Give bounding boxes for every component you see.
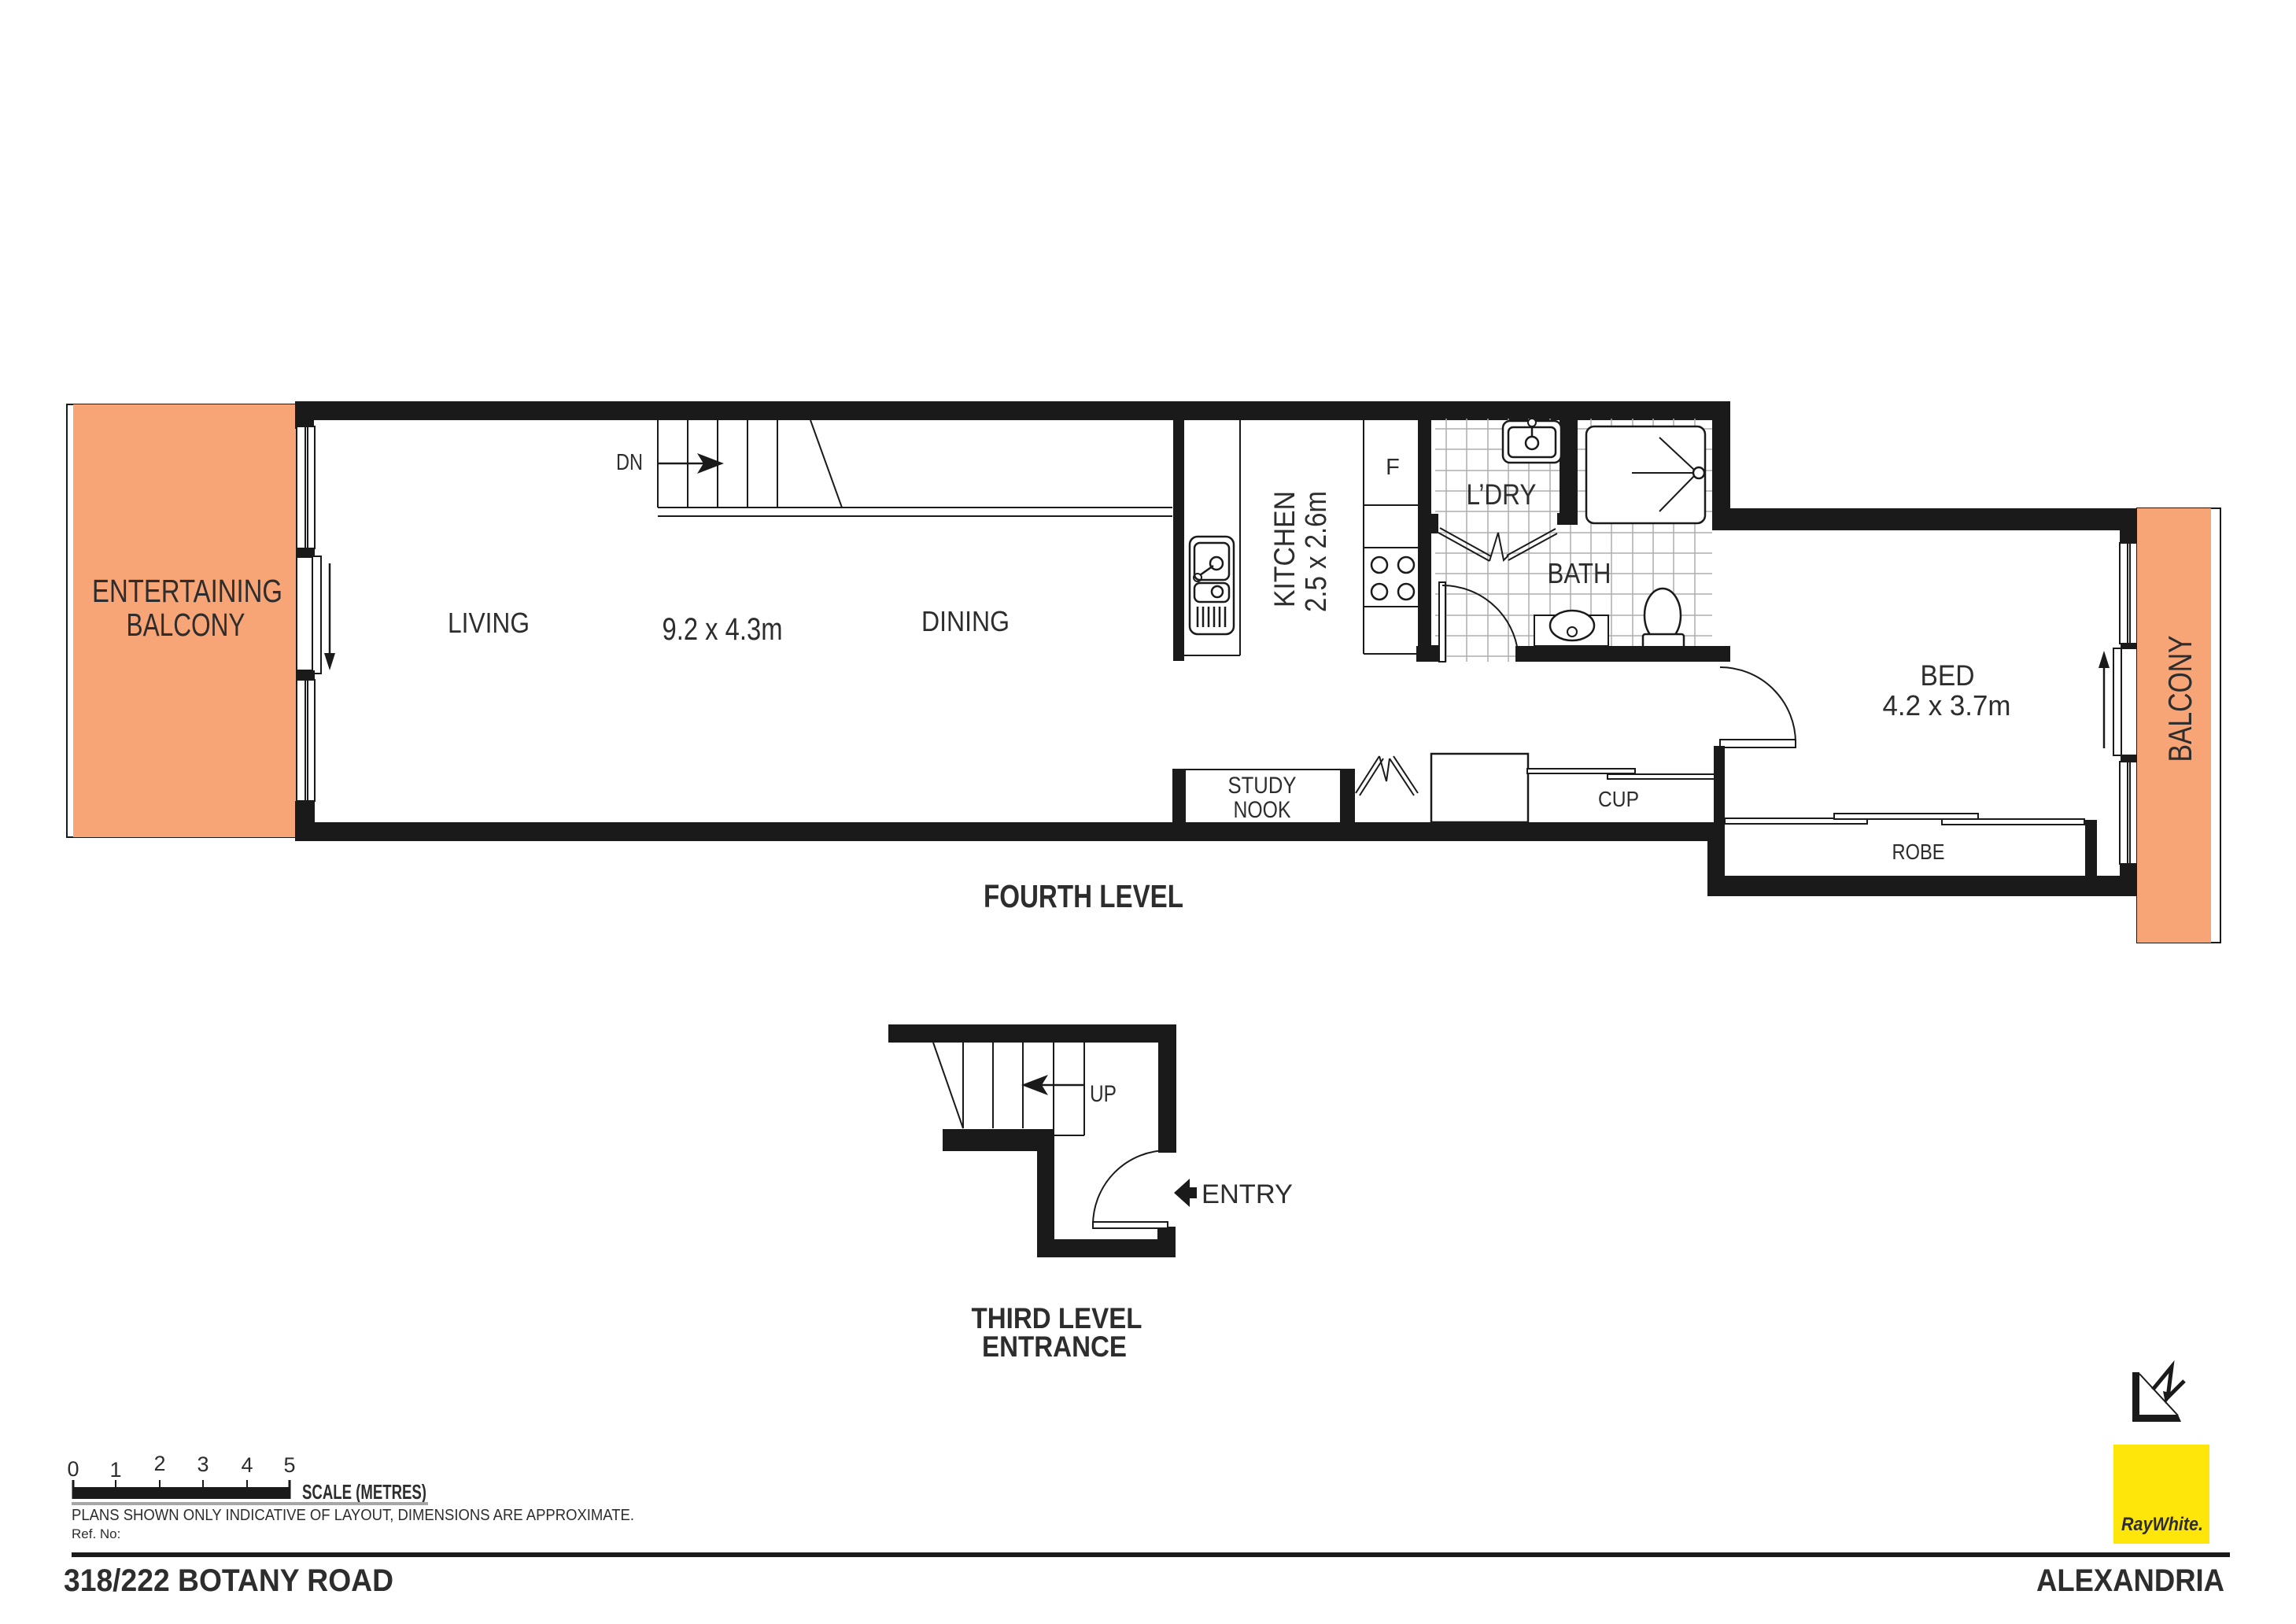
svg-text:BATH: BATH <box>1548 557 1611 589</box>
svg-text:ENTRANCE: ENTRANCE <box>982 1331 1127 1363</box>
svg-text:318/222 BOTANY ROAD: 318/222 BOTANY ROAD <box>64 1563 393 1598</box>
svg-text:0: 0 <box>67 1457 79 1481</box>
svg-text:PLANS SHOWN ONLY INDICATIVE OF: PLANS SHOWN ONLY INDICATIVE OF LAYOUT, D… <box>72 1507 634 1524</box>
svg-text:ENTRY: ENTRY <box>1202 1179 1293 1209</box>
svg-text:Ref. No:: Ref. No: <box>72 1526 120 1541</box>
svg-text:2.5 x 2.6m: 2.5 x 2.6m <box>1300 491 1333 612</box>
svg-text:THIRD LEVEL: THIRD LEVEL <box>972 1302 1142 1334</box>
svg-text:BALCONY: BALCONY <box>127 607 245 643</box>
svg-text:5: 5 <box>283 1453 295 1477</box>
svg-text:4.2 x 3.7m: 4.2 x 3.7m <box>1883 689 2011 722</box>
svg-text:FOURTH LEVEL: FOURTH LEVEL <box>984 878 1183 914</box>
svg-text:3: 3 <box>197 1452 209 1476</box>
svg-text:CUP: CUP <box>1598 787 1639 811</box>
svg-text:2: 2 <box>153 1452 165 1475</box>
svg-text:DN: DN <box>616 450 643 475</box>
svg-text:LIVING: LIVING <box>448 607 530 639</box>
svg-text:SCALE (METRES): SCALE (METRES) <box>302 1480 426 1504</box>
svg-text:ENTERTAINING: ENTERTAINING <box>92 573 282 609</box>
svg-text:RayWhite.: RayWhite. <box>2121 1514 2203 1535</box>
svg-text:BED: BED <box>1921 659 1975 692</box>
svg-text:ALEXANDRIA: ALEXANDRIA <box>2036 1563 2224 1598</box>
svg-text:9.2 x 4.3m: 9.2 x 4.3m <box>663 612 783 647</box>
svg-text:F: F <box>1386 455 1400 480</box>
svg-text:ROBE: ROBE <box>1892 840 1945 864</box>
svg-text:BALCONY: BALCONY <box>2161 636 2198 762</box>
svg-text:DINING: DINING <box>921 605 1010 637</box>
svg-text:STUDY: STUDY <box>1228 773 1297 799</box>
svg-text:1: 1 <box>109 1458 121 1482</box>
svg-text:UP: UP <box>1090 1081 1117 1107</box>
svg-text:KITCHEN: KITCHEN <box>1268 491 1301 607</box>
svg-text:4: 4 <box>241 1453 253 1477</box>
svg-text:NOOK: NOOK <box>1234 797 1291 823</box>
svg-text:L’DRY: L’DRY <box>1467 478 1537 511</box>
